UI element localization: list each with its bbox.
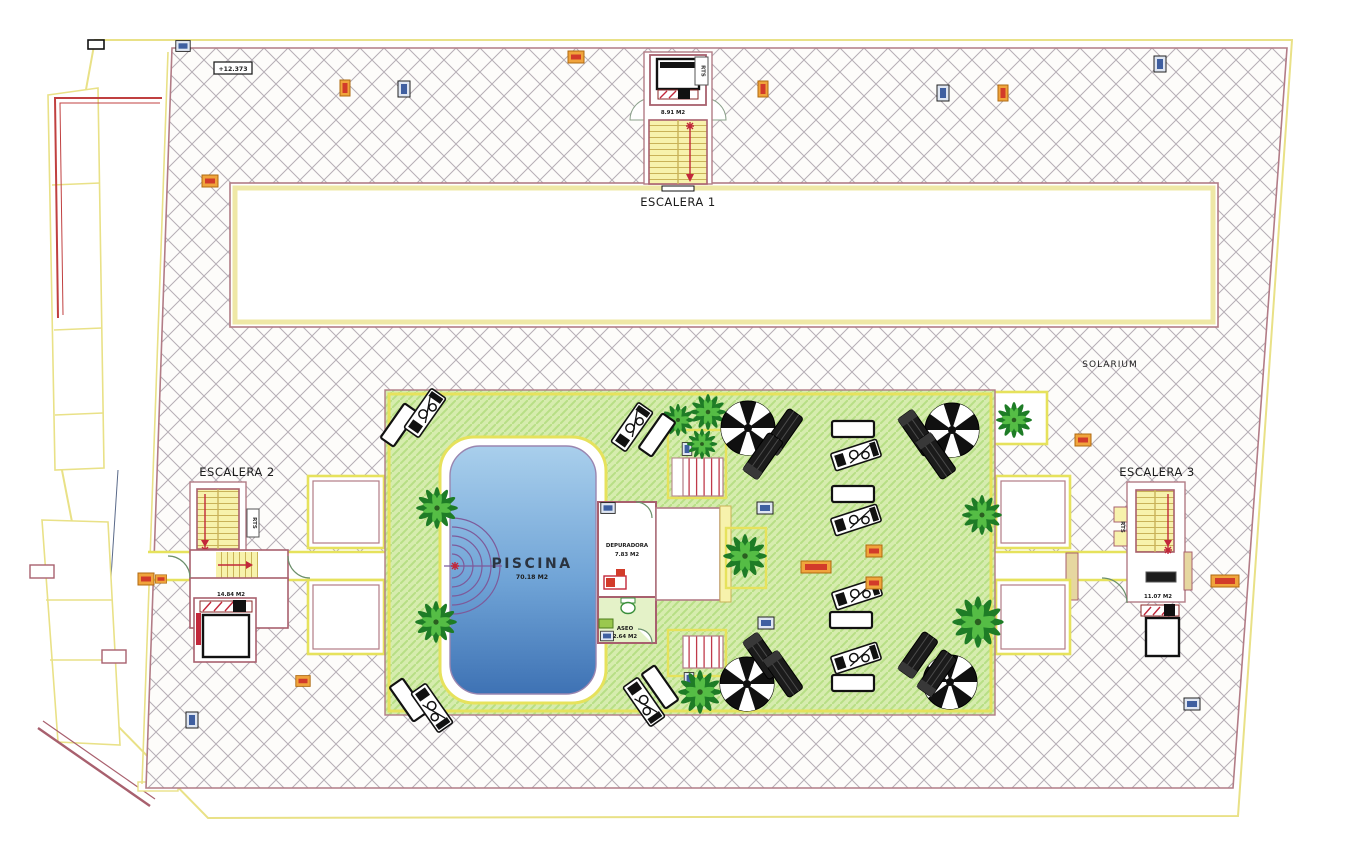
- drain-badge-icon: [398, 81, 410, 97]
- elevation-value: +12.373: [218, 66, 247, 73]
- roof-plan-drawing: PISCINA 70.18 M2 DEPURADORA 7.83 M2 ASEO…: [0, 0, 1360, 850]
- escalera3-area-label: 11.07 M2: [1144, 594, 1172, 600]
- elevator-2: [194, 598, 256, 662]
- pool-label: PISCINA: [491, 556, 572, 572]
- vent-badge-icon: [568, 51, 584, 63]
- escalera1-title: ESCALERA 1: [640, 195, 716, 209]
- lounger-icon: [832, 486, 874, 502]
- depuradora-room: DEPURADORA 7.83 M2: [598, 502, 656, 597]
- vent-badge-icon: [202, 175, 218, 187]
- floor-plan-canvas: PISCINA 70.18 M2 DEPURADORA 7.83 M2 ASEO…: [0, 0, 1360, 850]
- aseo-label: ASEO: [617, 626, 634, 632]
- vent-badge-icon: [340, 80, 350, 96]
- elevation-badge-icon: [866, 577, 882, 589]
- stair-flight-2: [197, 489, 239, 554]
- vent-badge-icon: [758, 81, 768, 97]
- escalera3-title: ESCALERA 3: [1119, 465, 1195, 479]
- planter-right-top: [996, 476, 1070, 548]
- drain-badge-icon: [937, 85, 949, 101]
- shade-pavilion: [656, 506, 731, 602]
- planter-left-bottom: [308, 580, 384, 654]
- corner-marker: [88, 40, 104, 49]
- drain-badge-icon: [757, 502, 773, 514]
- depuradora-area-label: 7.83 M2: [615, 552, 640, 558]
- lounger-icon: [832, 421, 874, 437]
- aseo-room: ASEO 2.64 M2: [598, 597, 656, 643]
- drain-badge-icon: [758, 617, 774, 629]
- lounger-icon: [830, 612, 872, 628]
- planter-right-bottom: [996, 580, 1070, 654]
- rts-label-3: RTS: [1119, 521, 1125, 533]
- roof-void-opening: [230, 183, 1218, 327]
- stair-flight-1: [649, 120, 707, 184]
- elevation-marker: +12.373: [214, 62, 252, 74]
- elevation-badge-icon: [866, 545, 882, 557]
- planter-left-top: [308, 476, 384, 548]
- elevator-1: [657, 59, 699, 99]
- drain-badge-icon: [1184, 698, 1200, 710]
- lounger-icon: [832, 675, 874, 691]
- escalera1-area-label: 8.91 M2: [661, 110, 686, 116]
- vent-badge-icon: [998, 85, 1008, 101]
- rts-box-3b: [1114, 531, 1127, 546]
- pool-area-label: 70.18 M2: [516, 574, 548, 581]
- elevator-3: [1141, 604, 1179, 656]
- rts-label-1: RTS: [700, 65, 706, 77]
- solarium-label: SOLARIUM: [1082, 360, 1137, 370]
- vent-badge-icon: [1075, 434, 1091, 446]
- vent-badge-icon: [155, 575, 166, 583]
- escalera2-title: ESCALERA 2: [199, 465, 275, 479]
- drain-badge-icon: [1154, 56, 1166, 72]
- elevation-badge-wide: [801, 561, 831, 573]
- aseo-area-label: 2.64 M2: [613, 634, 638, 640]
- drain-badge-icon: [601, 503, 615, 514]
- highlighted-label: [1146, 572, 1176, 582]
- rts-box-3: [1114, 507, 1127, 522]
- stair-flight-3: [1136, 490, 1174, 554]
- drain-badge-icon: [601, 631, 614, 641]
- swimming-pool: PISCINA 70.18 M2: [440, 437, 606, 703]
- landing-2: [190, 550, 288, 580]
- pool-datum-marker: [451, 562, 459, 570]
- depuradora-label: DEPURADORA: [606, 543, 649, 549]
- duct-shaft: [1184, 552, 1192, 590]
- landing-tick: [662, 186, 694, 191]
- elevation-badge-wide: [1211, 575, 1239, 587]
- escalera2-area-label: 14.84 M2: [217, 592, 245, 598]
- vent-badge-icon: [138, 573, 154, 585]
- drain-badge-icon: [176, 41, 190, 52]
- corridor-escalera2-terrace: [287, 552, 387, 580]
- green-badge-icon: [599, 619, 613, 628]
- drain-badge-icon: [186, 712, 198, 728]
- vent-badge-icon: [296, 676, 310, 687]
- rts-label-2: RTS: [251, 517, 257, 529]
- toilet-icon: [621, 598, 635, 614]
